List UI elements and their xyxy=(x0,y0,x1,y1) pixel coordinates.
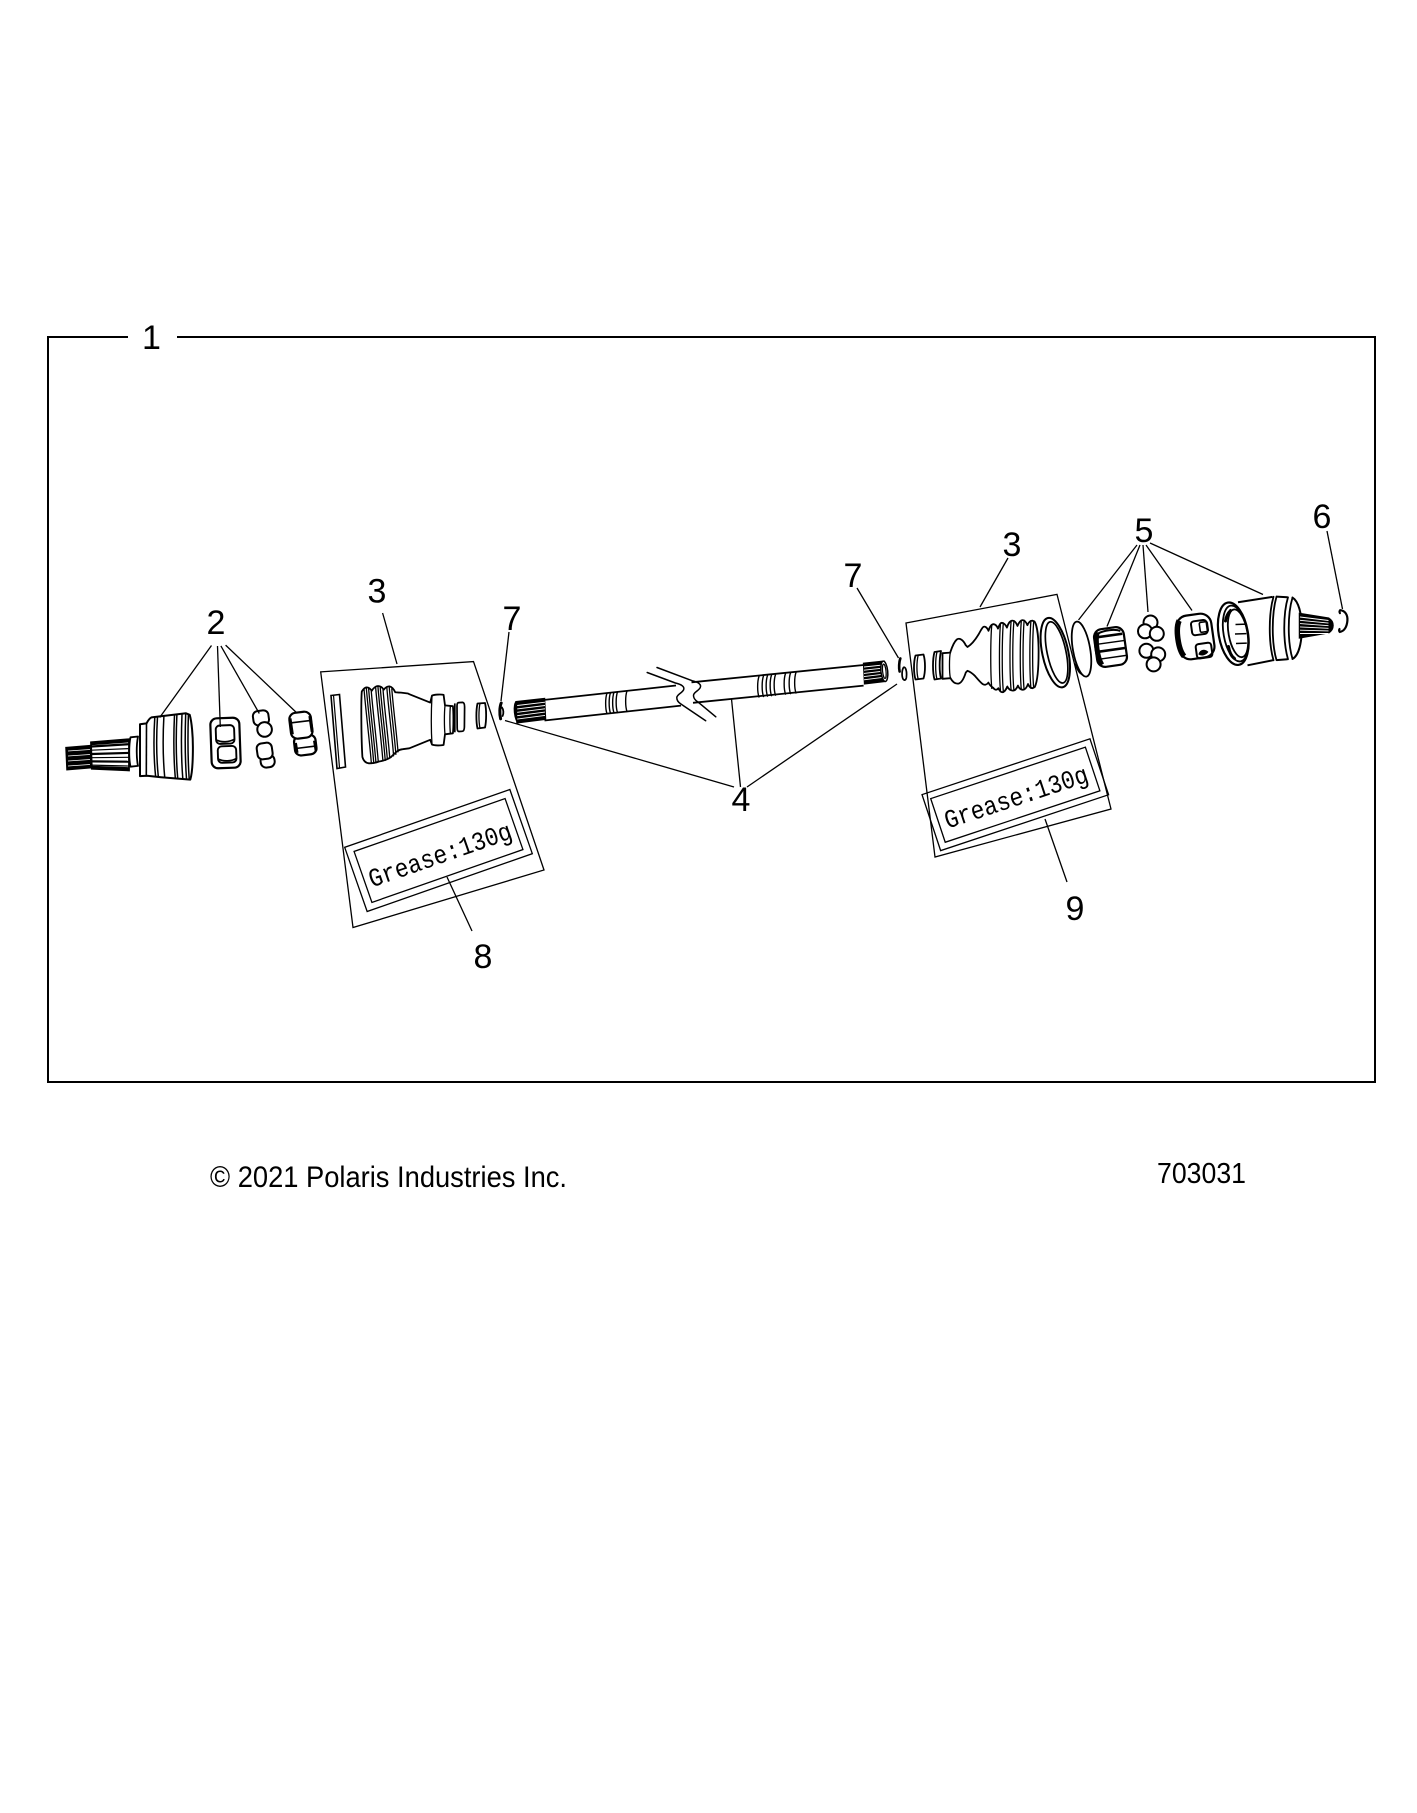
svg-text:703031: 703031 xyxy=(1157,1158,1246,1190)
svg-text:3: 3 xyxy=(1003,526,1022,564)
svg-text:3: 3 xyxy=(368,573,387,611)
svg-text:5: 5 xyxy=(1135,512,1154,550)
svg-text:7: 7 xyxy=(844,557,863,595)
svg-text:8: 8 xyxy=(474,938,493,976)
svg-text:1: 1 xyxy=(142,319,161,357)
svg-text:7: 7 xyxy=(503,600,522,638)
svg-text:© 2021 Polaris Industries Inc.: © 2021 Polaris Industries Inc. xyxy=(210,1161,567,1194)
svg-text:9: 9 xyxy=(1066,890,1085,928)
svg-text:2: 2 xyxy=(207,604,226,642)
svg-text:6: 6 xyxy=(1313,498,1332,536)
